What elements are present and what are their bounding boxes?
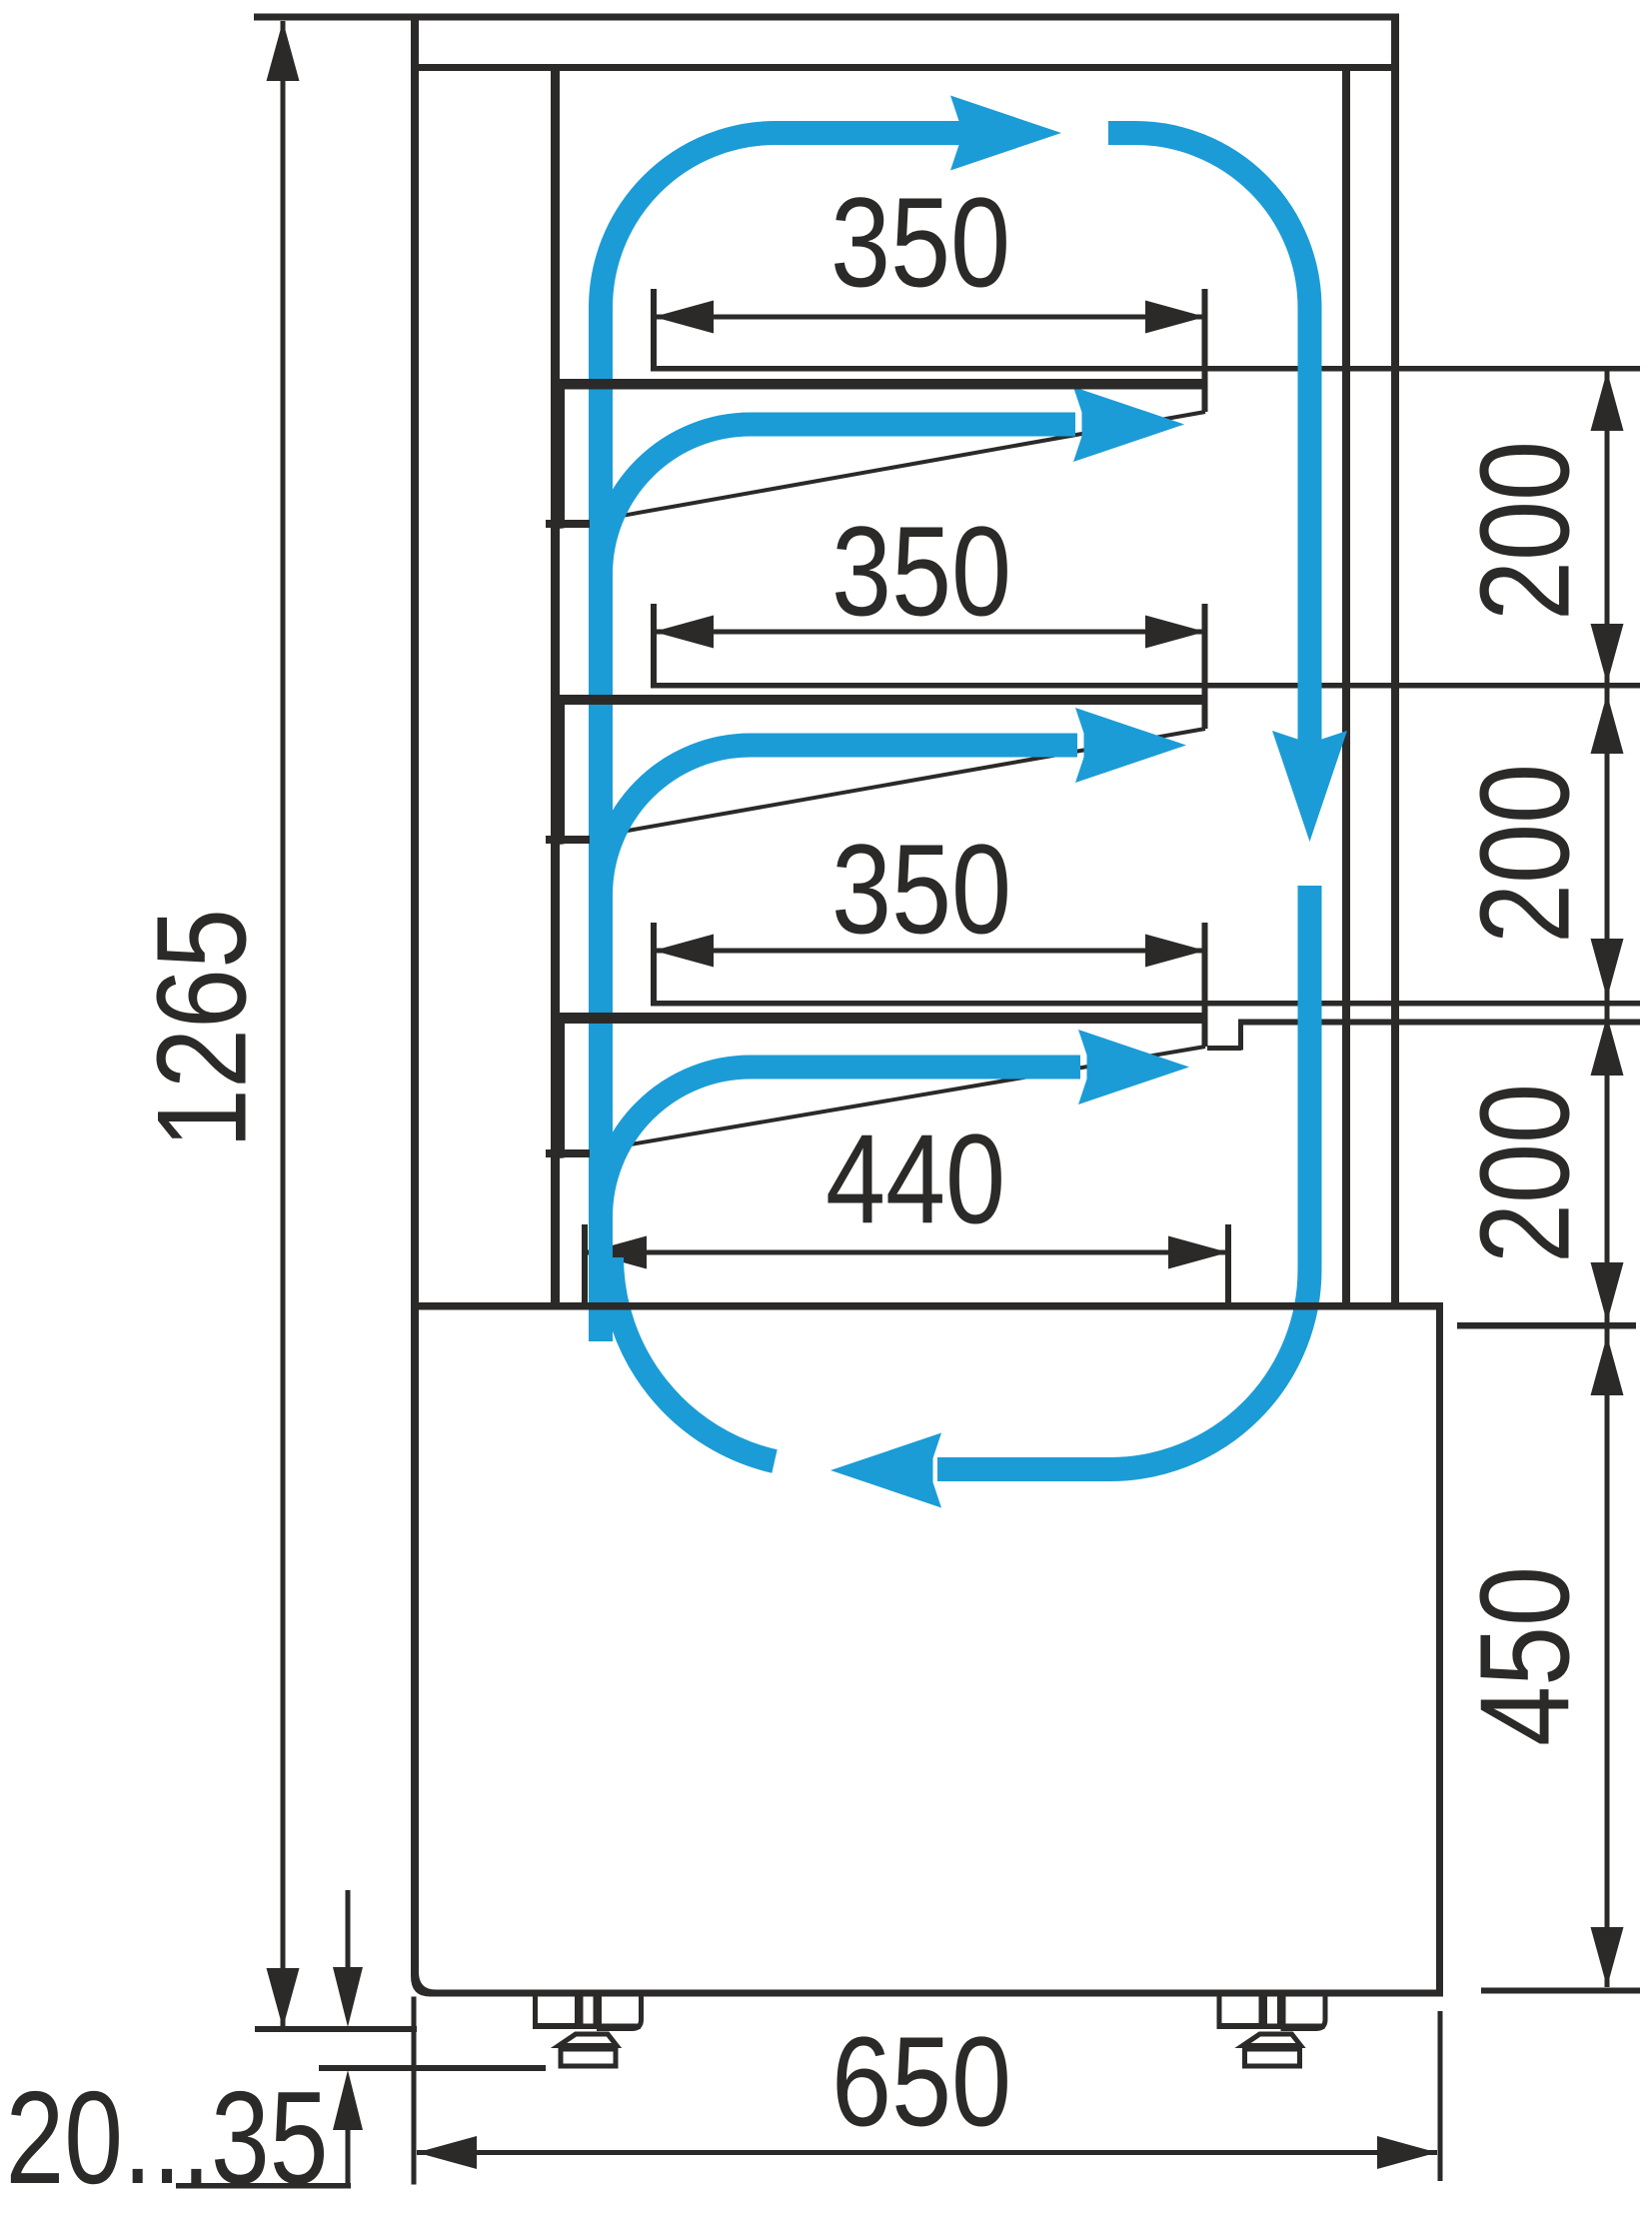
- svg-text:350: 350: [831, 500, 1011, 642]
- svg-text:200: 200: [1453, 1084, 1595, 1263]
- svg-text:1265: 1265: [130, 909, 272, 1148]
- svg-text:20...35: 20...35: [6, 2065, 329, 2212]
- svg-text:450: 450: [1453, 1566, 1595, 1746]
- svg-text:650: 650: [831, 2010, 1011, 2152]
- svg-text:350: 350: [831, 818, 1011, 960]
- svg-text:200: 200: [1453, 441, 1595, 621]
- svg-text:200: 200: [1453, 764, 1595, 944]
- svg-text:440: 440: [826, 1107, 1005, 1249]
- svg-text:350: 350: [830, 171, 1010, 313]
